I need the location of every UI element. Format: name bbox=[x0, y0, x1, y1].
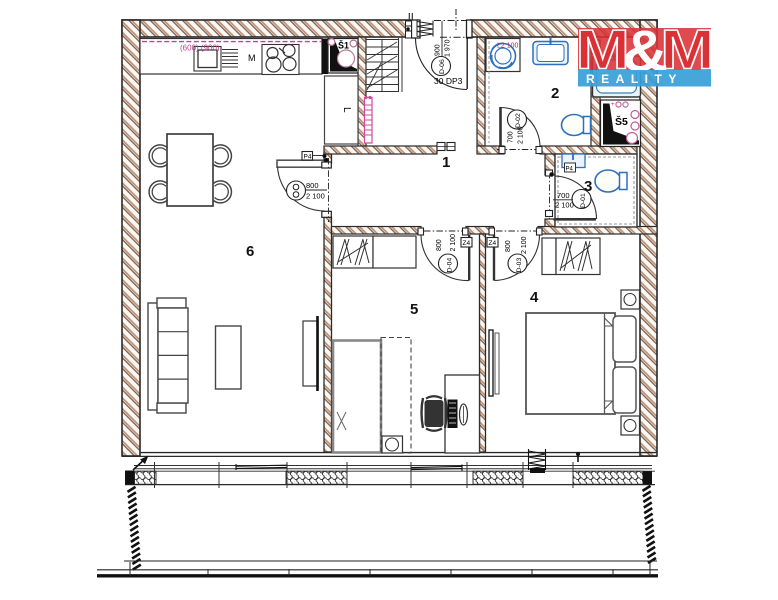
svg-text:REALITY: REALITY bbox=[586, 72, 683, 86]
svg-text:D-02: D-02 bbox=[515, 113, 522, 128]
svg-text:1: 1 bbox=[442, 154, 450, 171]
svg-text:(600) (900): (600) (900) bbox=[180, 44, 220, 53]
svg-text:L: L bbox=[341, 107, 352, 113]
svg-text:P4: P4 bbox=[566, 167, 574, 173]
svg-text:800: 800 bbox=[505, 240, 512, 252]
svg-text:4: 4 bbox=[530, 289, 539, 306]
svg-text:2 100: 2 100 bbox=[555, 201, 574, 210]
svg-text:2 100: 2 100 bbox=[518, 126, 525, 144]
svg-text:Š1: Š1 bbox=[338, 40, 349, 51]
svg-text:800: 800 bbox=[436, 239, 443, 251]
svg-text:700: 700 bbox=[508, 131, 515, 143]
svg-text:+: + bbox=[611, 102, 615, 108]
svg-text:Š5: Š5 bbox=[615, 115, 628, 128]
svg-text:M: M bbox=[248, 53, 256, 63]
svg-text:Z4: Z4 bbox=[489, 240, 497, 247]
svg-text:D-06: D-06 bbox=[439, 59, 446, 74]
svg-text:2: 2 bbox=[551, 85, 559, 102]
svg-text:P4: P4 bbox=[304, 154, 312, 161]
svg-text:900: 900 bbox=[435, 44, 442, 56]
svg-text:800: 800 bbox=[306, 181, 319, 190]
svg-text:2 100: 2 100 bbox=[306, 192, 325, 201]
svg-text:D-04: D-04 bbox=[447, 258, 454, 273]
svg-text:D-01: D-01 bbox=[580, 193, 587, 208]
svg-text:30 DP3: 30 DP3 bbox=[434, 76, 463, 86]
svg-text:Z4: Z4 bbox=[463, 240, 471, 247]
svg-text:2 100: 2 100 bbox=[450, 234, 457, 252]
svg-text:700: 700 bbox=[557, 191, 570, 200]
svg-text:1 970: 1 970 bbox=[445, 39, 452, 57]
svg-text:2 100: 2 100 bbox=[521, 236, 528, 254]
svg-text:5: 5 bbox=[410, 301, 418, 318]
svg-text:D-03: D-03 bbox=[516, 258, 523, 273]
svg-text:L2 100: L2 100 bbox=[497, 43, 519, 50]
svg-text:6: 6 bbox=[246, 243, 254, 260]
